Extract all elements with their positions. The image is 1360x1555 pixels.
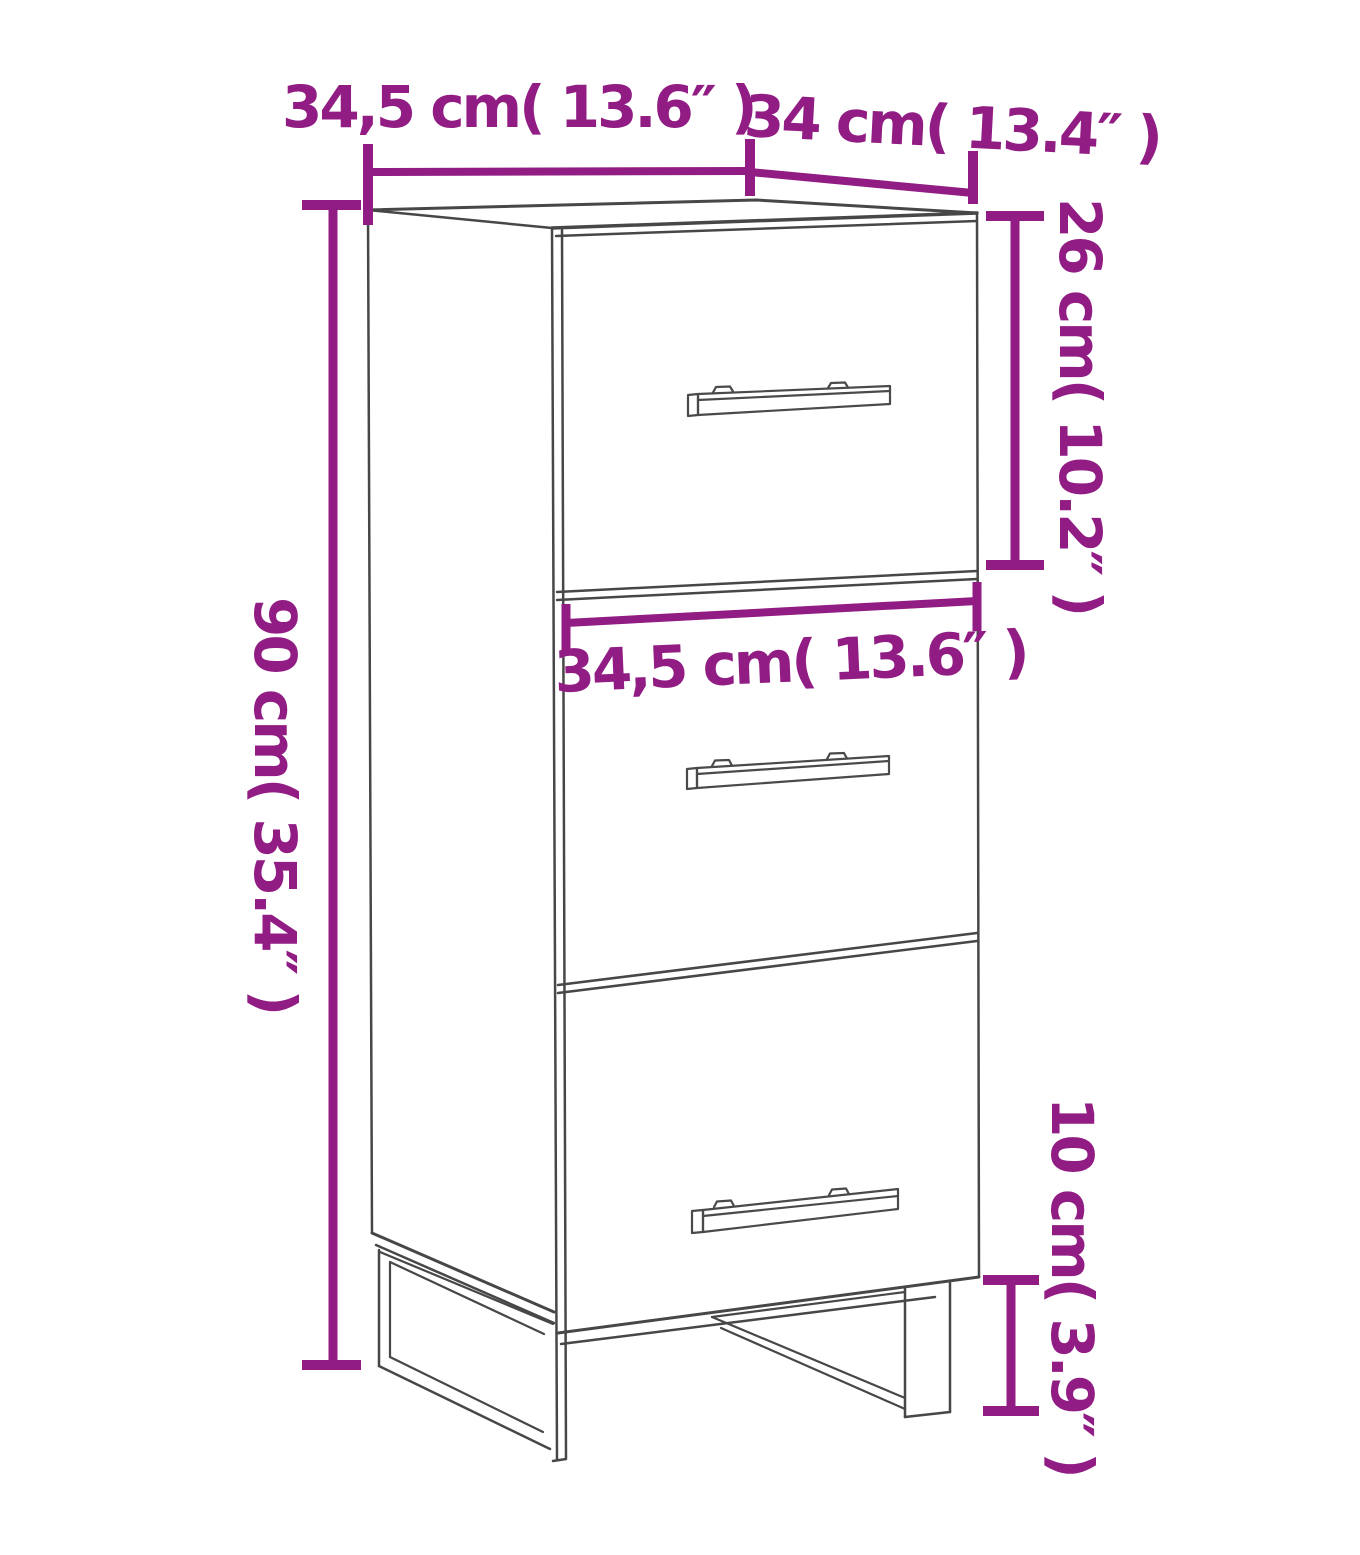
cabinet-body (368, 200, 979, 1460)
top-width-dimension-line (368, 139, 750, 225)
dim-label-top-drawer-height: 26 cm( 10.2″ ) (1047, 198, 1112, 614)
overall-height-dimension-line (302, 205, 361, 1365)
drawer-handle-1 (688, 383, 890, 417)
leg-height-dimension-line (983, 1280, 1039, 1411)
dim-label-top-width: 34,5 cm( 13.6″ ) (282, 75, 755, 140)
right-leg (712, 1283, 950, 1417)
top-drawer-height-dimension-line (986, 216, 1044, 565)
drawer-handle-2 (687, 753, 889, 789)
drawer-handle-3 (692, 1189, 898, 1234)
left-leg (379, 1250, 566, 1461)
dim-label-leg-height: 10 cm( 3.9″ ) (1039, 1097, 1104, 1476)
cabinet-line-drawing-canvas (0, 0, 1360, 1555)
dim-label-overall-height: 90 cm( 35.4″ ) (242, 597, 307, 1013)
dimension-diagram: 34,5 cm( 13.6″ ) 34 cm( 13.4″ ) 26 cm( 1… (0, 0, 1360, 1555)
